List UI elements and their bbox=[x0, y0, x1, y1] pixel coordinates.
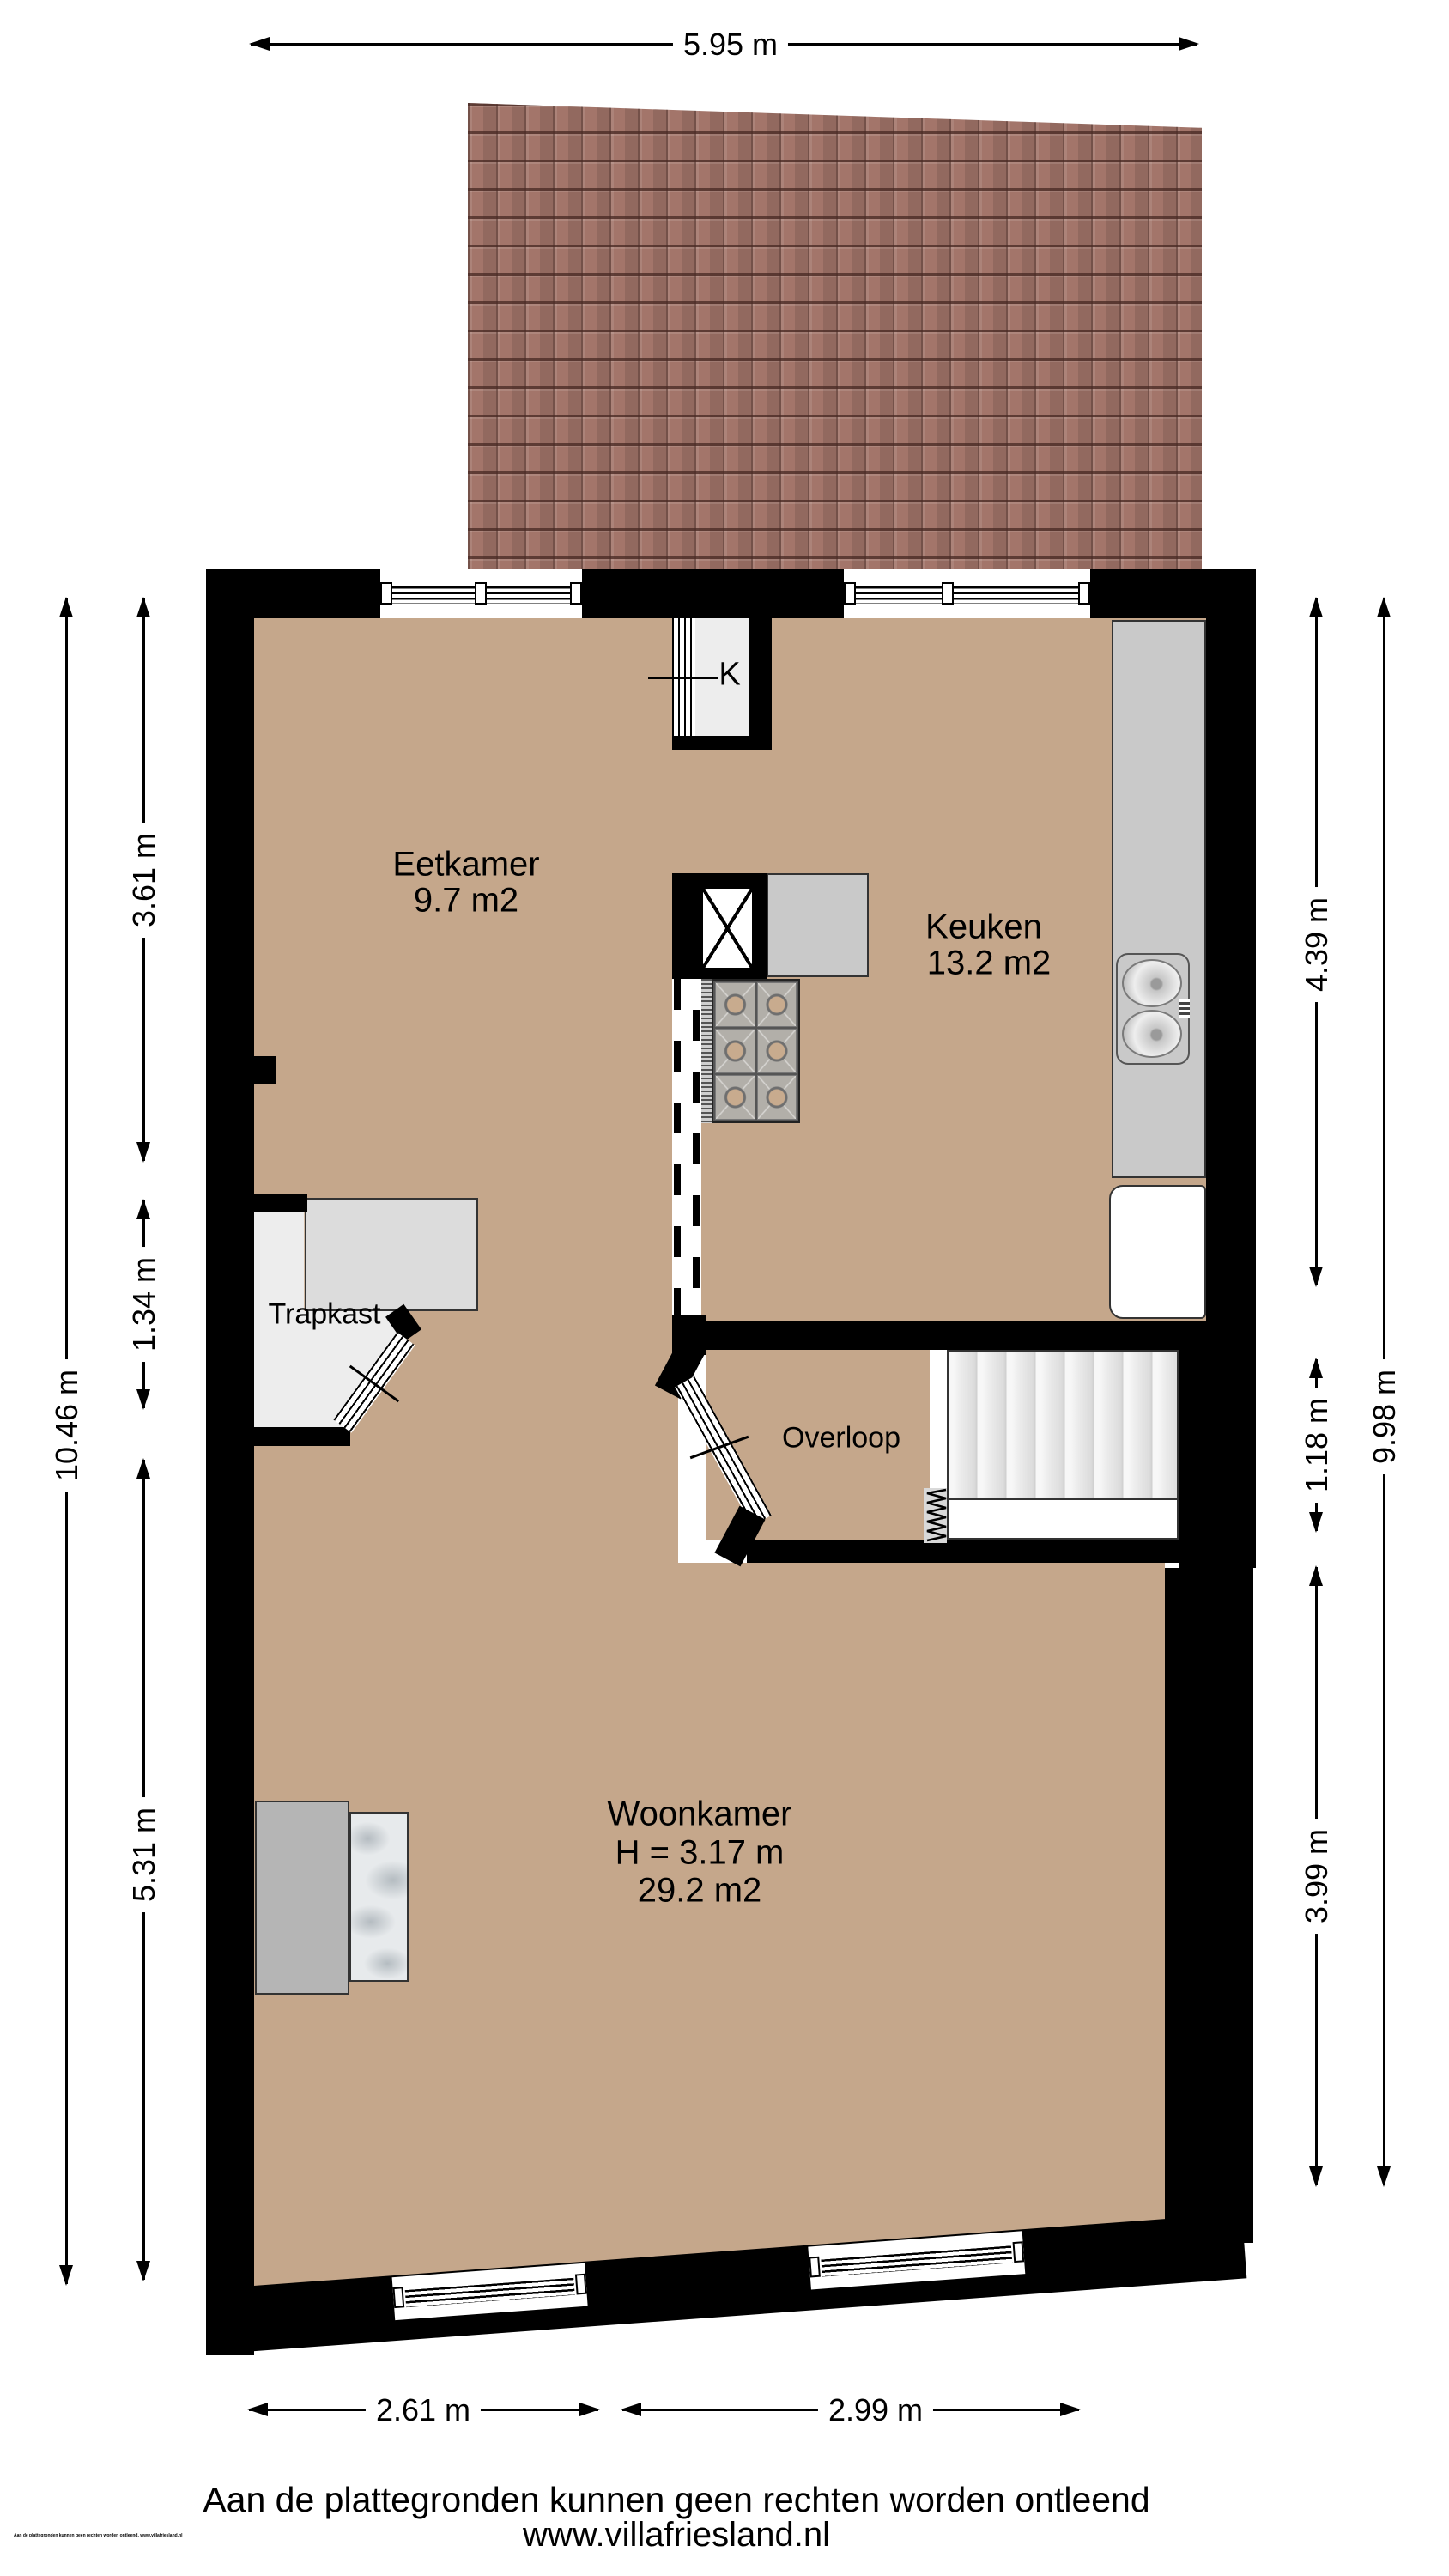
footer-disclaimer: Aan de plattegronden kunnen geen rechten… bbox=[203, 2480, 1149, 2520]
wall-top-b bbox=[582, 569, 844, 618]
window-glazing bbox=[405, 2278, 575, 2307]
sink-basin-bottom bbox=[1122, 1010, 1182, 1058]
room-area-woonkamer: 29.2 m2 bbox=[638, 1872, 762, 1911]
burner-icon bbox=[757, 1029, 797, 1073]
room-area-keuken: 13.2 m2 bbox=[927, 945, 1052, 983]
overloop-wall-bottom bbox=[747, 1540, 1179, 1563]
kitchen-counter-right bbox=[1112, 620, 1206, 1178]
footer-small-print: Aan de plattegronden kunnen geen rechten… bbox=[14, 2533, 183, 2538]
open-wall-dashes-left bbox=[674, 979, 681, 1315]
room-area-eetkamer: 9.7 m2 bbox=[414, 882, 518, 920]
window-mullion bbox=[844, 582, 856, 605]
fridge-cabinet bbox=[1109, 1185, 1206, 1319]
fireplace-marble bbox=[349, 1812, 409, 1982]
kast-wall-bottom bbox=[672, 736, 772, 750]
window-glazing bbox=[821, 2245, 1012, 2276]
wall-left bbox=[206, 569, 254, 2355]
window-mullion bbox=[1078, 582, 1090, 605]
trapkast-wall-bottom bbox=[254, 1427, 350, 1446]
room-label-trapkast: Trapkast bbox=[268, 1298, 380, 1332]
dim-label-right-bottom: 3.99 m bbox=[1300, 1819, 1334, 1934]
trapkast-stair-flight bbox=[305, 1198, 478, 1311]
stairs-landing bbox=[947, 1498, 1179, 1540]
wall-right-upper bbox=[1206, 569, 1256, 1322]
floorplan-canvas: 5.95 m 10.46 m 3.61 m 1.34 m 5.31 m 4.39… bbox=[0, 0, 1449, 2576]
window-glazing bbox=[851, 586, 1083, 604]
burner-icon bbox=[757, 1075, 797, 1120]
window-mullion bbox=[570, 582, 582, 605]
wall-left-stub bbox=[254, 1056, 276, 1084]
dim-label-top: 5.95 m bbox=[673, 27, 788, 62]
sink bbox=[1116, 953, 1190, 1065]
window-mullion bbox=[475, 582, 487, 605]
burner-icon bbox=[757, 982, 797, 1027]
kast-wall-right bbox=[749, 618, 772, 750]
room-label-woonkamer: Woonkamer bbox=[608, 1795, 792, 1834]
burner-icon bbox=[715, 1075, 755, 1120]
stairs-main bbox=[947, 1350, 1179, 1500]
room-height-woonkamer: H = 3.17 m bbox=[615, 1834, 785, 1873]
room-label-keuken: Keuken bbox=[925, 908, 1042, 947]
dim-label-right-outer: 9.98 m bbox=[1367, 1359, 1402, 1474]
dim-label-left-middle: 1.34 m bbox=[127, 1247, 161, 1362]
shaft-x-icon bbox=[700, 886, 755, 970]
room-label-kast: K bbox=[718, 657, 740, 694]
window-mullion bbox=[575, 2274, 587, 2295]
sink-basin-top bbox=[1122, 959, 1182, 1007]
open-wall-dashes-right bbox=[693, 979, 700, 1315]
wall-right-lower bbox=[1165, 1568, 1253, 2243]
dim-label-right-middle: 1.18 m bbox=[1300, 1388, 1334, 1503]
window-mullion bbox=[392, 2287, 404, 2308]
window-mullion bbox=[380, 582, 392, 605]
room-label-overloop: Overloop bbox=[782, 1422, 900, 1455]
dim-label-bottom-right: 2.99 m bbox=[818, 2393, 933, 2427]
burner-icon bbox=[715, 1029, 755, 1073]
window-mullion bbox=[942, 582, 954, 605]
roof-tiles bbox=[468, 103, 1202, 569]
kast-leader-line bbox=[648, 677, 718, 679]
stove-side-grill bbox=[701, 979, 712, 1123]
stove bbox=[712, 979, 800, 1123]
dim-label-right-top: 4.39 m bbox=[1300, 887, 1334, 1002]
fireplace-base bbox=[255, 1801, 349, 1995]
window-mullion bbox=[809, 2257, 821, 2278]
dim-label-left-outer: 10.46 m bbox=[50, 1359, 84, 1492]
burner-icon bbox=[715, 982, 755, 1027]
window-mullion bbox=[1013, 2241, 1025, 2263]
trapkast-wall-top bbox=[254, 1194, 307, 1212]
window-top-right bbox=[844, 569, 1090, 618]
dim-label-left-top: 3.61 m bbox=[127, 823, 161, 938]
wall-right-middle bbox=[1179, 1322, 1256, 1568]
window-top-left bbox=[380, 569, 582, 618]
stair-break-zigzag-icon bbox=[924, 1488, 947, 1543]
dim-label-left-bottom: 5.31 m bbox=[127, 1797, 161, 1912]
overloop-wall-top bbox=[676, 1321, 1206, 1350]
faucet-icon bbox=[1179, 999, 1190, 1018]
footer-website: www.villafriesland.nl bbox=[523, 2516, 830, 2555]
room-label-eetkamer: Eetkamer bbox=[392, 846, 539, 884]
dim-label-bottom-left: 2.61 m bbox=[366, 2393, 481, 2427]
kitchen-counter-top bbox=[767, 873, 869, 977]
